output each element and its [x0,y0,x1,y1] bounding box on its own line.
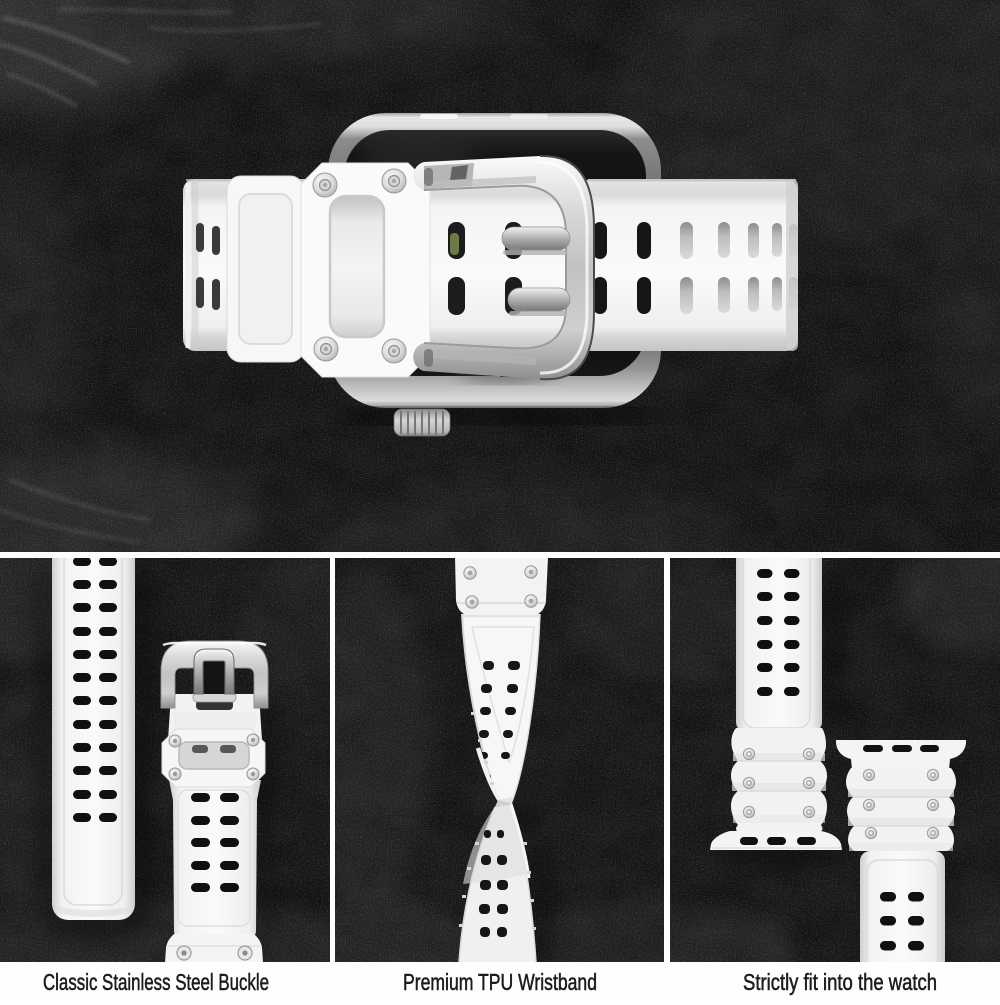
svg-text:Strictly fit into the watch: Strictly fit into the watch [743,969,937,995]
svg-text:Premium TPU Wristband: Premium TPU Wristband [403,969,597,995]
svg-text:Classic Stainless Steel Buckle: Classic Stainless Steel Buckle [43,969,269,995]
